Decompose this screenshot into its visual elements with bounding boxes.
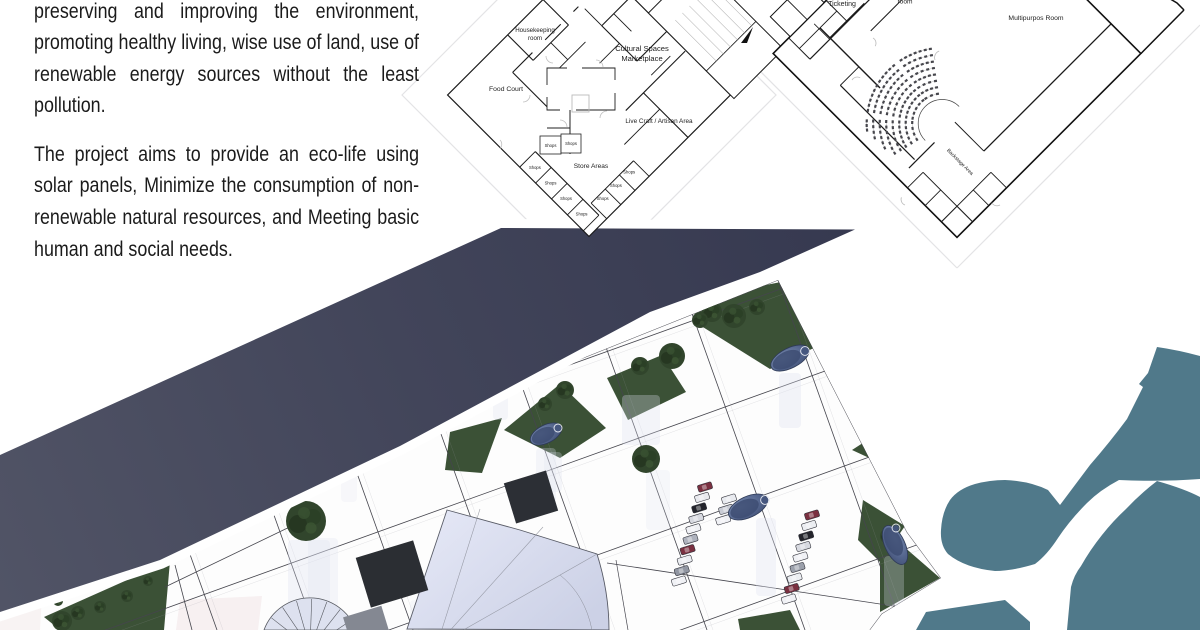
svg-text:Marketplace: Marketplace — [621, 54, 662, 63]
svg-text:Shops: Shops — [597, 196, 609, 201]
svg-text:Shops: Shops — [610, 183, 622, 188]
svg-text:Shops: Shops — [529, 165, 541, 170]
svg-text:Shops: Shops — [545, 143, 557, 148]
svg-text:Cultural Spaces: Cultural Spaces — [615, 44, 669, 53]
svg-text:room: room — [897, 0, 913, 6]
svg-text:Shops: Shops — [623, 170, 635, 175]
svg-text:Food Court: Food Court — [489, 86, 523, 93]
svg-text:Ticketing: Ticketing — [828, 1, 856, 8]
svg-text:room: room — [528, 35, 542, 42]
svg-text:Shops: Shops — [565, 141, 577, 146]
svg-text:Multipurpos Room: Multipurpos Room — [1008, 15, 1063, 22]
svg-text:Store Areas: Store Areas — [574, 163, 609, 170]
svg-text:Shops: Shops — [545, 181, 557, 186]
svg-text:Shops: Shops — [560, 196, 572, 201]
svg-text:Shops: Shops — [576, 212, 588, 217]
svg-text:Housekeeping: Housekeeping — [515, 27, 555, 34]
svg-text:Live Craft / Artisan Area: Live Craft / Artisan Area — [625, 118, 693, 125]
